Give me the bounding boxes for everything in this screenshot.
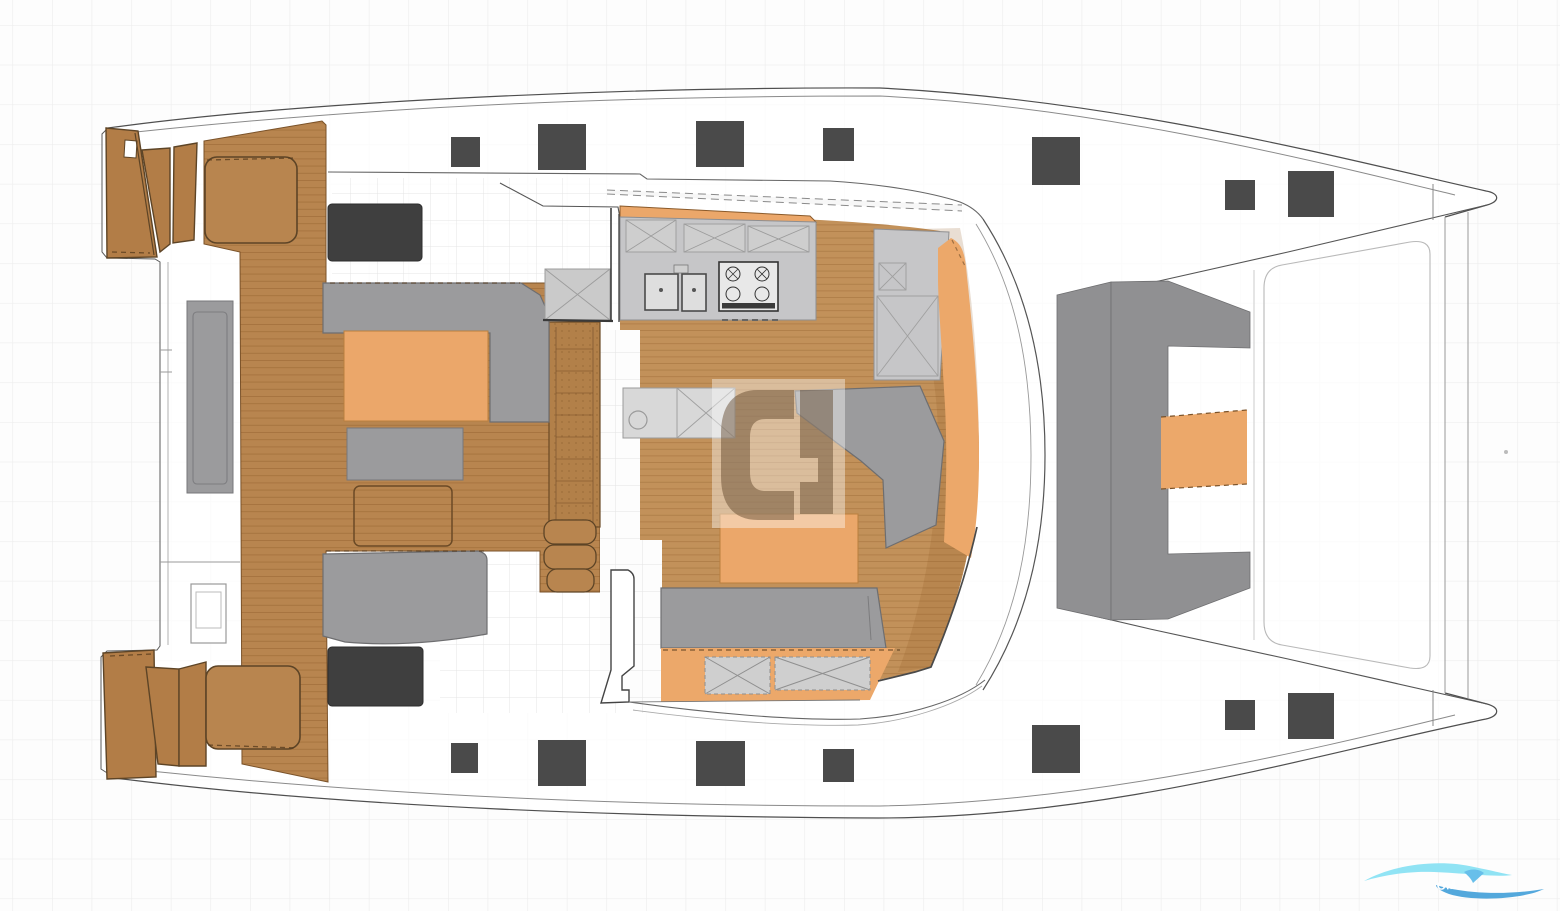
svg-text:OM: OM [1436, 878, 1456, 893]
